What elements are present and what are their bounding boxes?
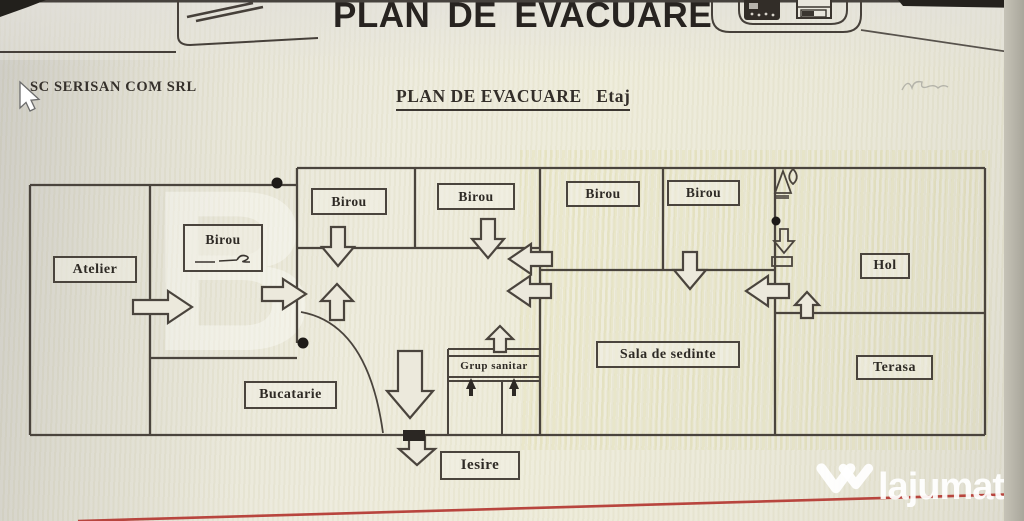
site-watermark: lajumate .ro <box>816 458 1024 504</box>
room-label-sala-de-sedinte: Sala de sedinte <box>596 341 740 368</box>
room-label-atelier: Atelier <box>53 256 137 283</box>
small-down-arrow-symbol <box>774 229 794 253</box>
plan-subtitle: PLAN DE EVACUARE Etaj <box>396 86 630 111</box>
room-label-birou-4: Birou <box>566 181 640 207</box>
lajumate-logo-icon <box>816 458 874 504</box>
photo-right-edge <box>1004 0 1024 521</box>
room-label-terasa: Terasa <box>856 355 933 380</box>
arrow-left-sala-lower <box>508 276 551 306</box>
page-title: PLAN DE EVACUARE <box>333 0 712 36</box>
arrow-right-birou1 <box>262 279 306 309</box>
drop-symbol <box>789 169 797 184</box>
arrow-left-hol <box>746 276 789 306</box>
arrow-down-birou3 <box>472 219 504 258</box>
arrow-right-atelier <box>133 291 192 323</box>
mouse-cursor-icon <box>14 80 44 116</box>
room-label-birou-5: Birou <box>667 180 740 206</box>
triangle-symbol <box>775 171 791 193</box>
room-label-bucatarie: Bucatarie <box>244 381 337 409</box>
room-label-birou-3: Birou <box>437 183 515 210</box>
handwriting-mark <box>896 68 976 102</box>
arrow-down-birou2 <box>322 227 354 266</box>
room-label-birou-1: Birou <box>183 224 263 272</box>
arrow-down-exit <box>399 437 435 465</box>
exit-door <box>403 430 425 441</box>
door-swing-arc <box>301 312 383 433</box>
arrow-up-corridor <box>321 284 353 320</box>
legend-pictogram-outline-icon <box>797 0 831 18</box>
watermark-brand: lajumate <box>878 470 1024 504</box>
room-label-hol: Hol <box>860 253 910 279</box>
room-label-birou-2: Birou <box>311 188 387 215</box>
legend-pictogram-dark-icon <box>744 0 780 20</box>
arrow-down-birou5 <box>674 252 706 289</box>
company-name: SC SERISAN COM SRL <box>30 79 197 96</box>
room-label-iesire: Iesire <box>440 451 520 480</box>
arrow-down-corridor-big <box>387 351 433 418</box>
scribble-mark <box>185 253 265 267</box>
photographed-evacuation-plan: B <box>0 0 1024 521</box>
room-label-grup-sanitar: Grup sanitar <box>449 357 539 375</box>
